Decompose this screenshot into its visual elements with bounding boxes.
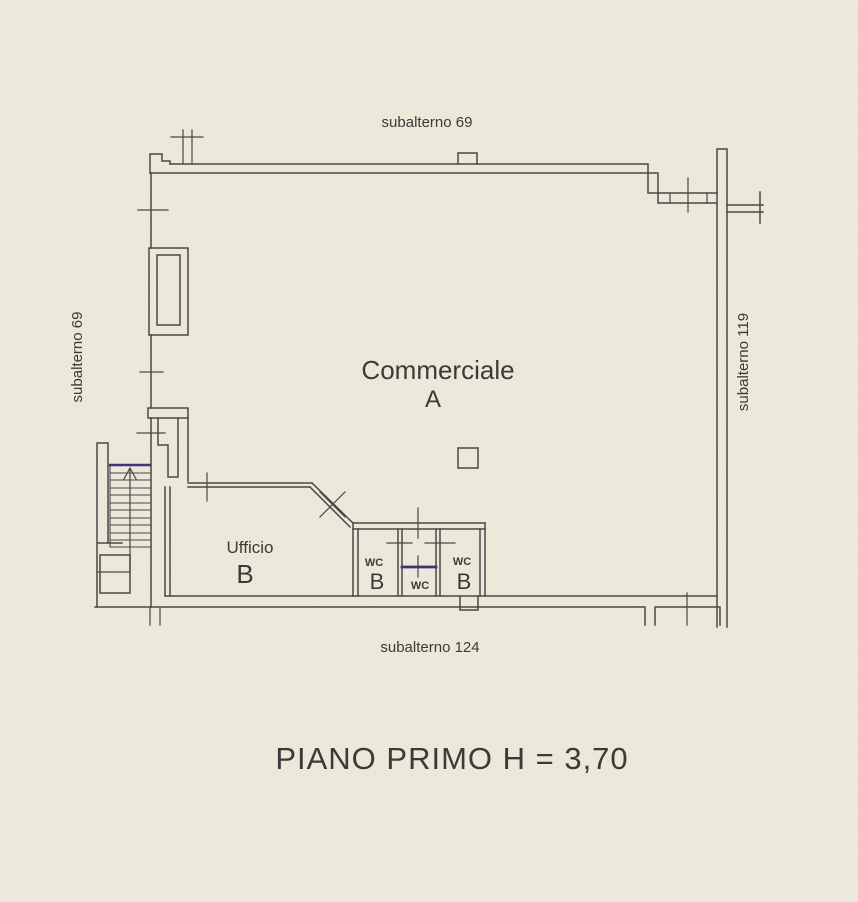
room-commerciale-name: Commerciale xyxy=(361,355,514,385)
floor-plan-svg: subalterno 69 subalterno 69 subalterno 1… xyxy=(0,0,858,902)
room-wc-right-letter: B xyxy=(457,569,472,594)
plan-title: PIANO PRIMO H = 3,70 xyxy=(275,741,628,776)
room-wc-left-name: WC xyxy=(365,557,383,569)
room-wc-middle-name: WC xyxy=(411,580,429,592)
label-subalterno-top: subalterno 69 xyxy=(382,114,473,131)
room-commerciale-letter: A xyxy=(425,386,441,413)
room-ufficio-name: Ufficio xyxy=(227,538,274,557)
label-subalterno-left: subalterno 69 xyxy=(69,312,86,403)
room-ufficio-letter: B xyxy=(236,559,253,589)
label-subalterno-bottom: subalterno 124 xyxy=(380,639,479,656)
room-wc-left-letter: B xyxy=(370,569,385,594)
scanned-floor-plan-page: subalterno 69 subalterno 69 subalterno 1… xyxy=(0,0,858,902)
label-subalterno-right: subalterno 119 xyxy=(735,313,752,411)
room-wc-right-name: WC xyxy=(453,556,471,568)
